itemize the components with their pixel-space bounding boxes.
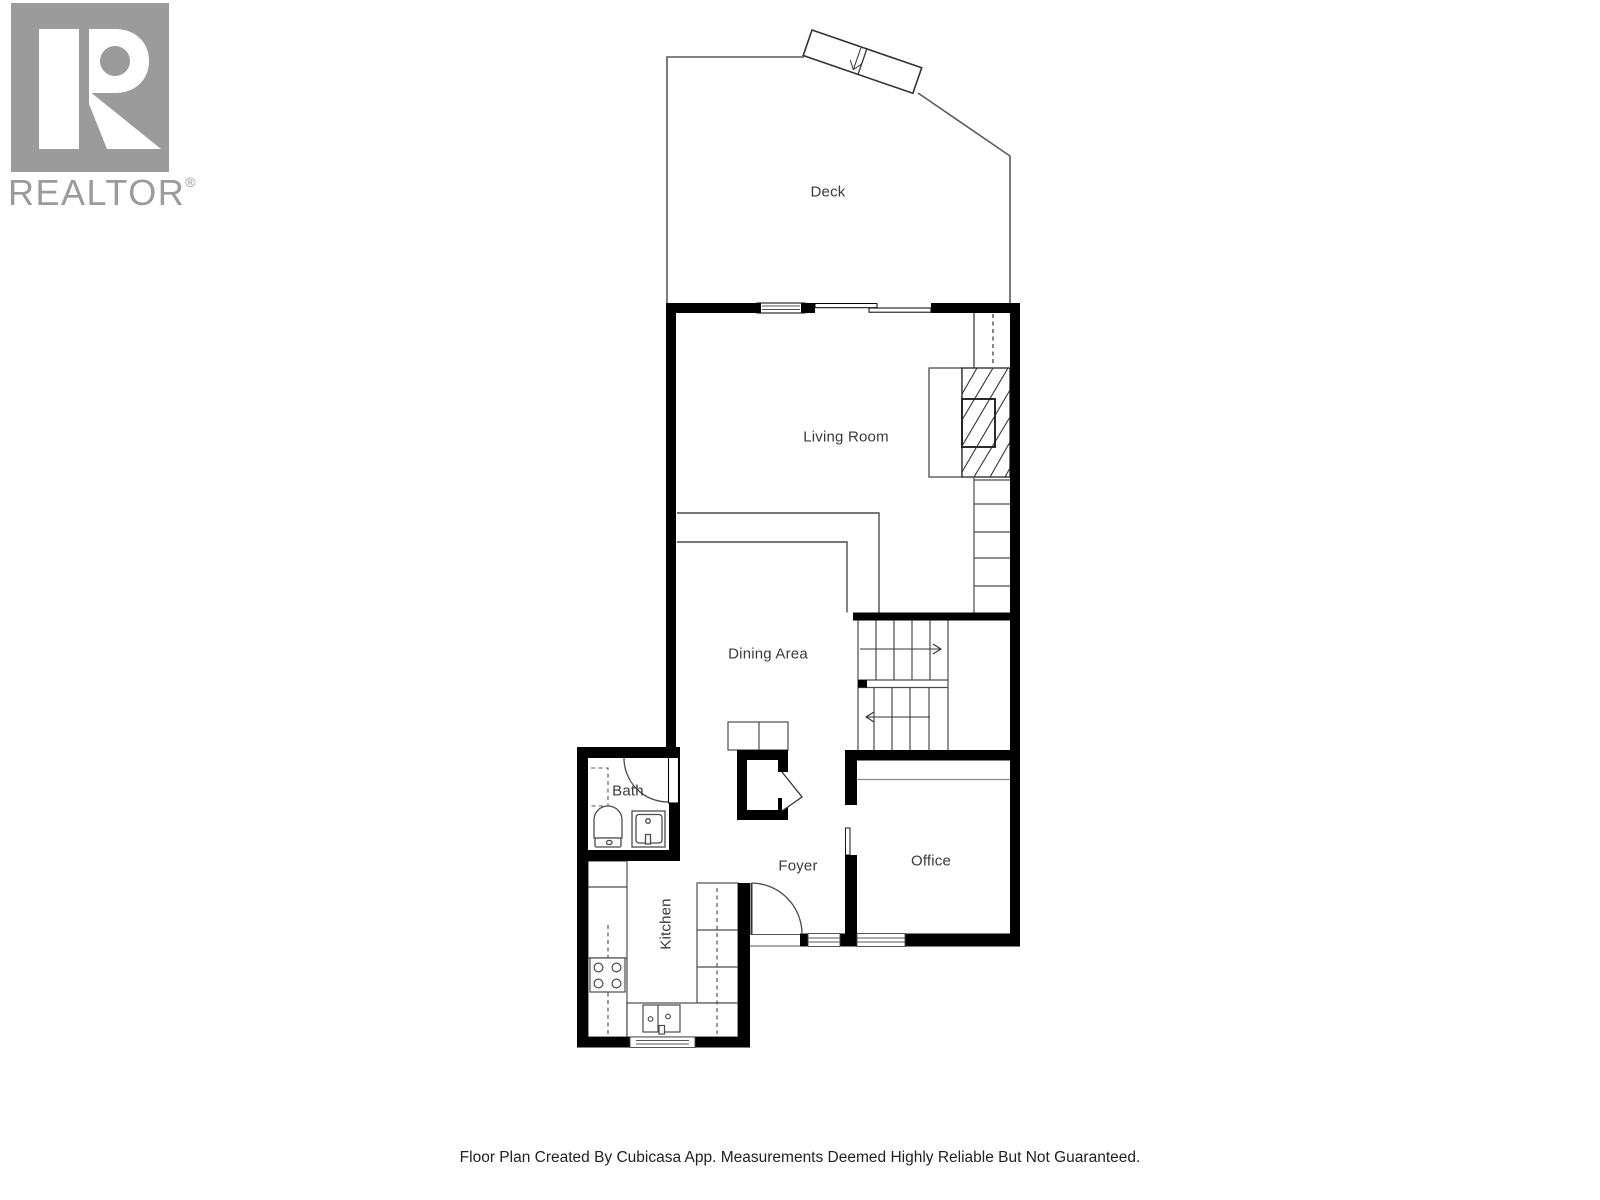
room-label-living-room: Living Room: [803, 429, 889, 446]
closet-door: [782, 772, 802, 811]
entry-door: [750, 883, 802, 947]
dining-cabinet: [728, 722, 788, 750]
office-window: [857, 934, 905, 947]
kitchen-stove-icon: [590, 958, 625, 992]
room-label-deck: Deck: [811, 184, 846, 201]
kitchen-sink-icon: [643, 1005, 680, 1034]
room-label-office: Office: [911, 853, 951, 870]
bath-toilet-icon: [594, 806, 622, 847]
fireplace: [929, 368, 1010, 477]
room-label-kitchen: Kitchen: [658, 898, 675, 949]
room-label-dining-area: Dining Area: [728, 646, 808, 663]
floor-plan-drawing: [0, 0, 1600, 1200]
footer-disclaimer: Floor Plan Created By Cubicasa App. Meas…: [0, 1149, 1600, 1167]
room-label-bath: Bath: [612, 783, 644, 800]
living-room-window: [757, 303, 805, 313]
bath-sink-icon: [632, 811, 665, 847]
bath-ceiling-dashed-line: [591, 768, 608, 806]
main-staircase: [858, 621, 948, 751]
foyer-window: [808, 934, 840, 947]
kitchen-window: [630, 1037, 695, 1048]
office-pocket-door: [846, 828, 851, 855]
deck-outline: [667, 57, 1010, 303]
stairs-down-arrow: [866, 712, 930, 722]
living-room-sliding-door: [815, 303, 931, 313]
deck-stairs-icon: [803, 30, 921, 93]
stairs-up-arrow: [860, 644, 941, 654]
floor-plan-page: REALTOR®: [0, 0, 1600, 1200]
side-stairs: [974, 478, 1010, 613]
room-label-foyer: Foyer: [778, 858, 817, 875]
